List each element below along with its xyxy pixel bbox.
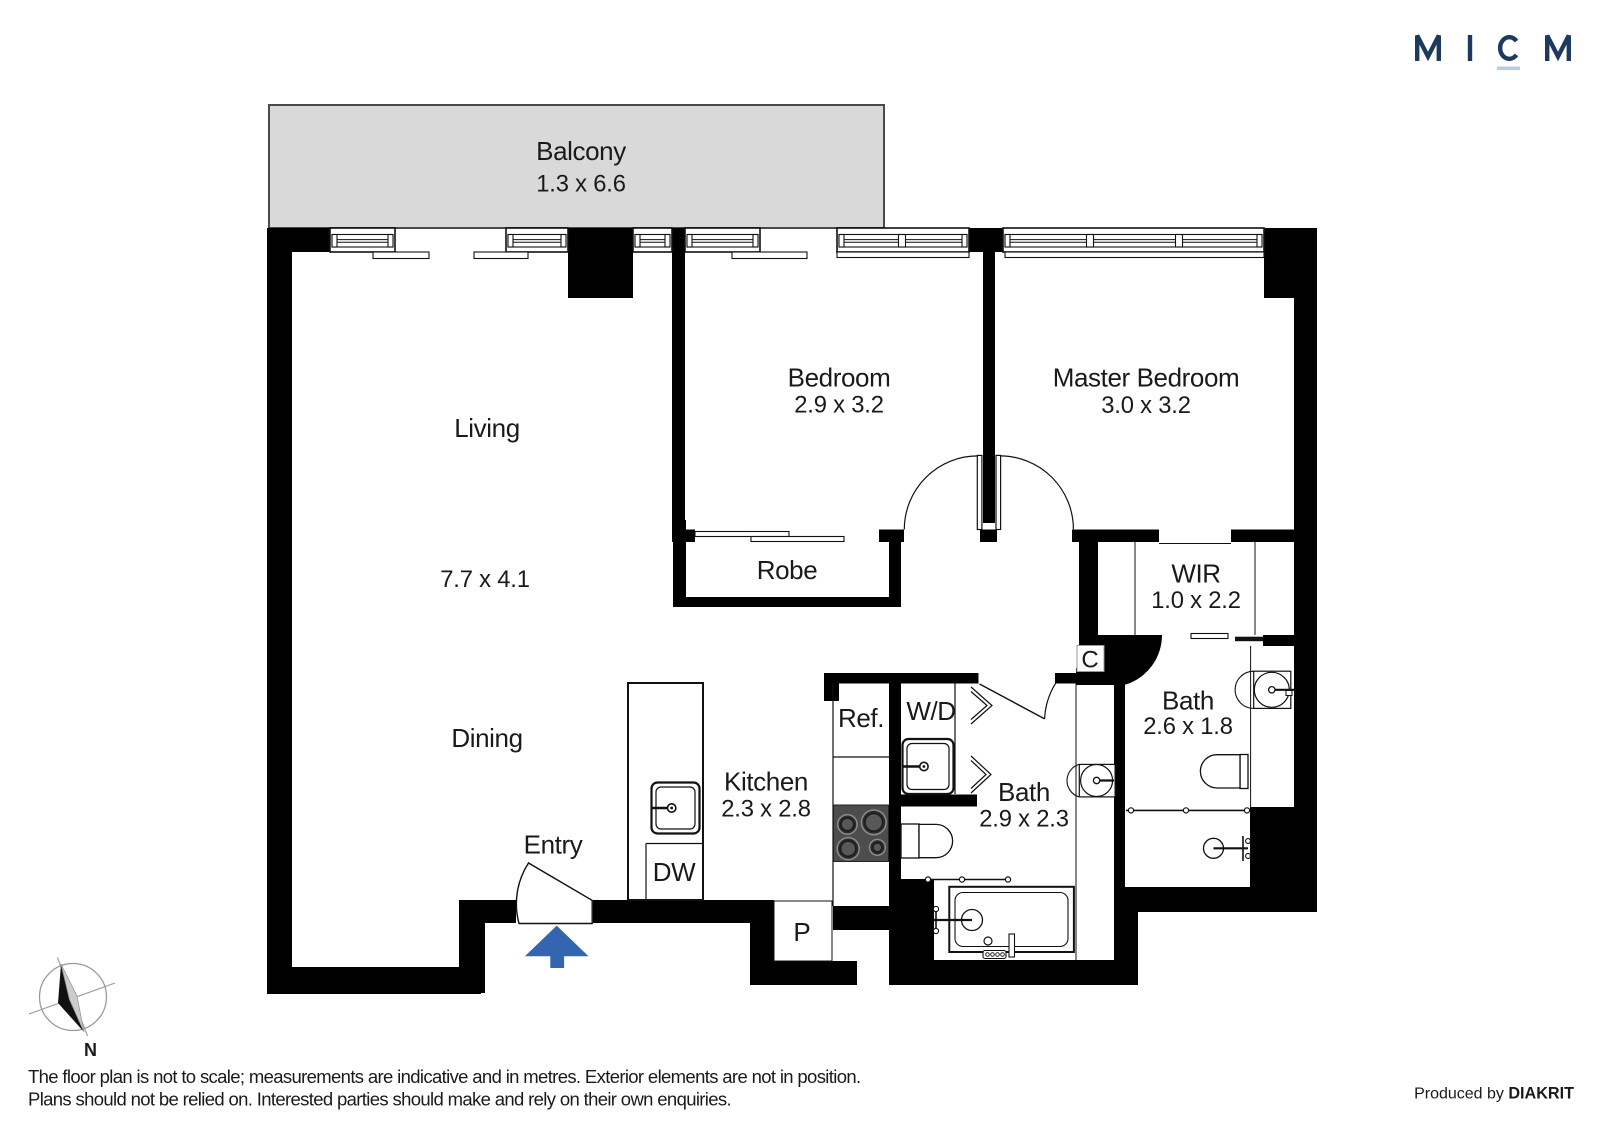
svg-text:Entry: Entry	[524, 830, 583, 860]
svg-text:Living: Living	[454, 413, 520, 443]
svg-text:2.9 x 3.2: 2.9 x 3.2	[794, 392, 883, 419]
svg-text:DW: DW	[653, 857, 696, 887]
svg-text:7.7 x 4.1: 7.7 x 4.1	[440, 566, 529, 593]
svg-text:WIR: WIR	[1171, 559, 1220, 589]
svg-text:Master Bedroom: Master Bedroom	[1053, 363, 1240, 393]
svg-text:2.6 x 1.8: 2.6 x 1.8	[1143, 713, 1232, 740]
svg-text:2.9 x 2.3: 2.9 x 2.3	[979, 806, 1068, 833]
svg-text:3.0 x 3.2: 3.0 x 3.2	[1101, 392, 1190, 419]
svg-text:P: P	[793, 917, 810, 947]
svg-text:Balcony: Balcony	[536, 136, 626, 166]
svg-text:C: C	[1081, 647, 1098, 674]
svg-text:Kitchen: Kitchen	[724, 767, 808, 797]
svg-text:1.3 x 6.6: 1.3 x 6.6	[536, 171, 625, 198]
svg-text:Dining: Dining	[451, 723, 522, 753]
svg-text:Bedroom: Bedroom	[788, 363, 891, 393]
svg-text:Bath: Bath	[998, 777, 1050, 807]
svg-text:The floor plan is not to scale: The floor plan is not to scale; measurem…	[28, 1066, 860, 1087]
svg-text:Produced by DIAKRIT: Produced by DIAKRIT	[1414, 1085, 1574, 1103]
svg-text:Robe: Robe	[757, 555, 818, 585]
svg-text:Plans should not be relied on.: Plans should not be relied on. Intereste…	[28, 1089, 731, 1110]
svg-text:Ref.: Ref.	[838, 703, 884, 733]
svg-text:N: N	[84, 1040, 97, 1060]
svg-text:2.3 x 2.8: 2.3 x 2.8	[721, 796, 810, 823]
svg-text:Bath: Bath	[1162, 686, 1214, 716]
svg-text:W/D: W/D	[906, 696, 955, 726]
svg-text:1.0 x 2.2: 1.0 x 2.2	[1151, 587, 1240, 614]
